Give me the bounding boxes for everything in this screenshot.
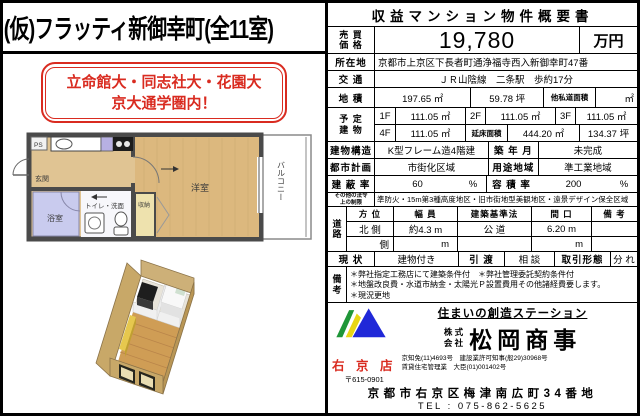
cityplan-label: 都市計画	[328, 159, 374, 175]
price-unit: 万円	[579, 27, 637, 53]
handover-label: 引 渡	[458, 252, 504, 266]
row-remarks: 備 考 ＊弊社指定工務店にて建築条件付 ＊弊社管理委託契約条件付 ＊地盤改良費・…	[328, 267, 637, 303]
floor-ratio-label: 容 積 率	[486, 176, 536, 192]
row-status: 現 状 建物付き 引 渡 相 談 取引形態 分 れ	[328, 252, 637, 267]
f1-area: 111.05 ㎡	[395, 108, 465, 124]
storage-label: 収納	[138, 201, 150, 209]
remark-line-1: ＊弊社指定工務店にて建築条件付 ＊弊社管理委託契約条件付	[350, 269, 634, 279]
coverage-unit: %	[460, 176, 486, 192]
ps-label: PS	[34, 142, 43, 149]
highlight-line-2: 京大通学圏内！	[66, 93, 261, 114]
postal-code: 〒615-0901	[345, 374, 384, 385]
floor-plan-drawing: 洋室 浴室 トイレ・洗面 収納 玄関 PS バルコニー	[11, 129, 317, 253]
restrictions-label: その他の法令 上の制限	[328, 193, 374, 206]
private-road-label: 他私道面積	[543, 88, 595, 107]
university-highlight: 立命館大・同志社大・花園大 京大通学圏内！	[3, 54, 325, 127]
property-title-bar: (仮)フラッティ新御幸町(全11室)	[3, 3, 325, 54]
row-ratios: 建 蔽 率 60 % 容 積 率 200 %	[328, 176, 637, 193]
zoning-label: 用途地域	[488, 159, 538, 175]
summary-table: 収益マンション物件概要書 売 買 価 格 19,780 万円 所在地 京都市上京…	[325, 3, 637, 413]
restrictions-value: 準防火・15m第3種高度地区・旧市街地型美観地区・遠景デザイン保全区域	[374, 193, 637, 206]
coverage-label: 建 蔽 率	[328, 176, 374, 192]
status-label: 現 状	[328, 252, 374, 266]
company-type: 株 式 会 社	[444, 327, 463, 348]
land-area-m2: 197.65 ㎡	[374, 88, 470, 107]
road-header-row: 方 位 幅 員 建築基準法 間 口 備 考	[347, 207, 637, 221]
handover-value: 相 談	[504, 252, 554, 266]
sheet-title: 収益マンション物件概要書	[328, 3, 637, 27]
built-value: 未完成	[538, 142, 637, 158]
company-name: 松岡商事	[469, 321, 581, 355]
entrance-label: 玄関	[35, 174, 49, 183]
left-column: (仮)フラッティ新御幸町(全11室) 立命館大・同志社大・花園大 京大通学圏内！	[3, 3, 325, 413]
transaction-label: 取引形態	[554, 252, 610, 266]
road-row-blank: 側 m m	[347, 236, 637, 251]
license-numbers: 京知免(11)4693号 建設業許可知事(般29)30968号 賃貸住宅管理業 …	[396, 355, 547, 373]
branch-name: 右 京 店	[332, 355, 396, 374]
row-structure: 建物構造 K型フレーム造4階建 築 年 月 未完成	[328, 142, 637, 159]
f2-label: 2F	[465, 108, 485, 124]
remarks-text: ＊弊社指定工務店にて建築条件付 ＊弊社管理委託契約条件付 ＊地盤改良費・水道市納…	[346, 267, 637, 302]
row-land: 地 積 197.65 ㎡ 59.78 坪 他私道面積 ㎡	[328, 88, 637, 108]
isometric-drawing	[11, 258, 317, 408]
building-floors-row-1: 1F 111.05 ㎡ 2F 111.05 ㎡ 3F 111.05 ㎡	[375, 108, 637, 124]
row-access: 交 通 ＪＲ山陰線 二条駅 歩約17分	[328, 71, 637, 88]
room-label: 洋室	[191, 182, 209, 193]
license-line-1: 京知免(11)4693号 建設業許可知事(般29)30968号	[401, 355, 547, 364]
isometric-view	[3, 253, 325, 413]
f4-label: 4F	[375, 125, 395, 141]
access-label: 交 通	[328, 71, 374, 87]
total-floor-m2: 444.20 ㎡	[507, 125, 579, 141]
row-road: 道 路 方 位 幅 員 建築基準法 間 口 備 考 北 側 約4.3 m 公 道…	[328, 207, 637, 252]
built-label: 築 年 月	[488, 142, 538, 158]
license-line-2: 賃貸住宅管理業 大臣(01)001402号	[401, 364, 547, 373]
f3-area: 111.05 ㎡	[575, 108, 637, 124]
row-restrictions: その他の法令 上の制限 準防火・15m第3種高度地区・旧市街地型美観地区・遠景デ…	[328, 193, 637, 207]
company-tel: TEL : 075-862-5625	[332, 401, 633, 412]
company-logo-icon	[332, 305, 390, 339]
company-block: 住まいの創造ステーション 株 式 会 社 松岡商事 右 京 店 〒615-090…	[328, 303, 637, 413]
remark-line-3: ＊現況更地	[350, 290, 634, 300]
highlight-line-1: 立命館大・同志社大・花園大	[66, 72, 261, 93]
f2-area: 111.05 ㎡	[485, 108, 555, 124]
road-row-north: 北 側 約4.3 m 公 道 6.20 m	[347, 221, 637, 236]
bath-label: 浴室	[47, 213, 63, 223]
location-label: 所在地	[328, 54, 374, 70]
highlight-box: 立命館大・同志社大・花園大 京大通学圏内！	[41, 62, 287, 123]
land-area-tsubo: 59.78 坪	[470, 88, 543, 107]
property-title: (仮)フラッティ新御幸町(全11室)	[3, 9, 273, 46]
road-label: 道 路	[328, 207, 346, 251]
remark-line-2: ＊地盤改良費・水道市納金・太陽光Ｐ設置費用その他諸経費要します。	[350, 279, 634, 289]
balcony-label: バルコニー	[277, 161, 286, 201]
total-floor-tsubo: 134.37 坪	[579, 125, 637, 141]
total-floor-label: 延床面積	[465, 125, 507, 141]
building-label: 予 定 建 物	[328, 108, 374, 141]
transaction-value: 分 れ	[610, 252, 637, 266]
floor-ratio-value: 200	[536, 176, 611, 192]
private-road-value: ㎡	[595, 88, 637, 107]
row-location: 所在地 京都市上京区下長者町通浄福寺西入新御幸町47番	[328, 54, 637, 71]
f1-label: 1F	[375, 108, 395, 124]
row-price: 売 買 価 格 19,780 万円	[328, 27, 637, 54]
price-value: 19,780	[374, 27, 579, 53]
status-value: 建物付き	[374, 252, 458, 266]
coverage-value: 60	[374, 176, 460, 192]
cityplan-value: 市街化区域	[374, 159, 488, 175]
access-value: ＪＲ山陰線 二条駅 歩約17分	[374, 71, 637, 87]
company-tagline: 住まいの創造ステーション	[392, 305, 633, 321]
zoning-value: 準工業地域	[538, 159, 637, 175]
structure-label: 建物構造	[328, 142, 374, 158]
property-flyer: (仮)フラッティ新御幸町(全11室) 立命館大・同志社大・花園大 京大通学圏内！	[0, 0, 640, 416]
f3-label: 3F	[555, 108, 575, 124]
company-address: 京都市右京区梅津南広町34番地	[332, 385, 633, 401]
structure-value: K型フレーム造4階建	[374, 142, 488, 158]
land-label: 地 積	[328, 88, 374, 107]
toilet-label: トイレ・洗面	[85, 201, 125, 210]
remarks-label: 備 考	[328, 267, 346, 302]
f4-area: 111.05 ㎡	[395, 125, 465, 141]
price-label: 売 買 価 格	[328, 27, 374, 53]
floor-plan: 洋室 浴室 トイレ・洗面 収納 玄関 PS バルコニー	[3, 127, 325, 253]
floor-ratio-unit: %	[611, 176, 637, 192]
company-fax: FAX : 075-862-5475	[332, 412, 633, 413]
building-floors-row-2: 4F 111.05 ㎡ 延床面積 444.20 ㎡ 134.37 坪	[375, 124, 637, 141]
row-cityplan: 都市計画 市街化区域 用途地域 準工業地域	[328, 159, 637, 176]
location-value: 京都市上京区下長者町通浄福寺西入新御幸町47番	[374, 54, 637, 70]
row-building: 予 定 建 物 1F 111.05 ㎡ 2F 111.05 ㎡ 3F 111.0…	[328, 108, 637, 142]
